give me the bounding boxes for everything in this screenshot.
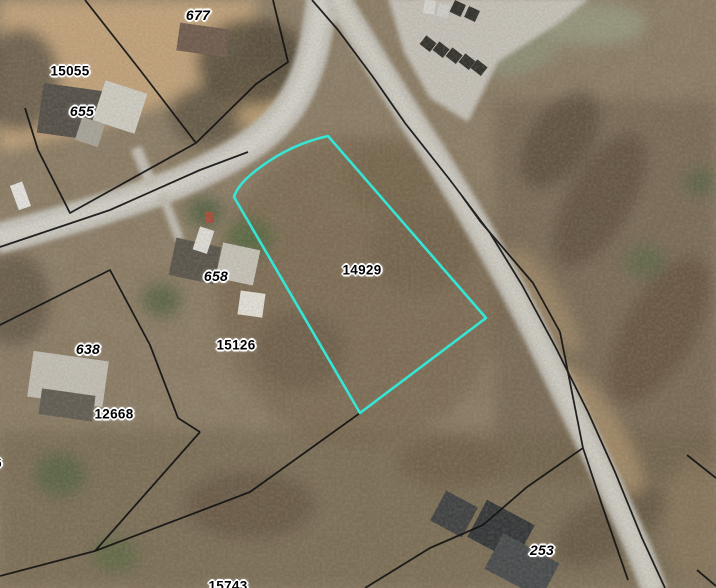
aerial-map-canvas[interactable]: 677 15055 655 658 14929 15126 638 12668 … (0, 0, 716, 588)
map-imagery-layer (0, 0, 716, 588)
terrain-texture-light (0, 0, 716, 588)
